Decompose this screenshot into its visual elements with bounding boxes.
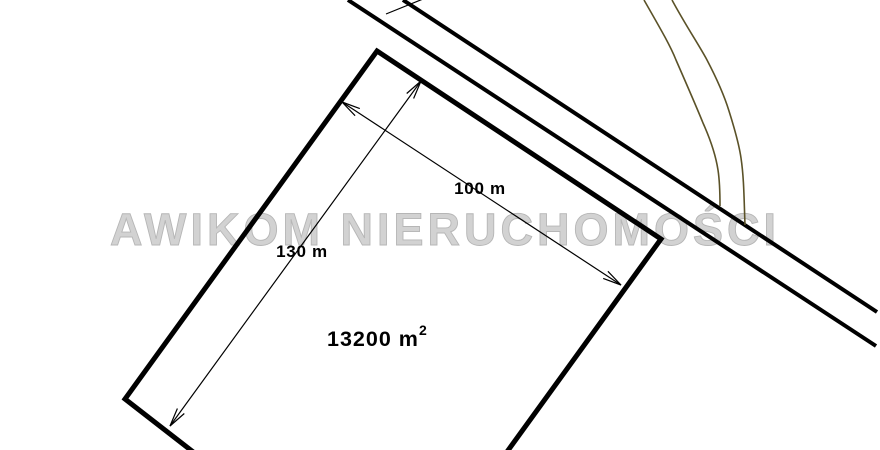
svg-text:AWIKOM NIERUCHOMOŚCI: AWIKOM NIERUCHOMOŚCI (110, 204, 780, 255)
svg-text:130 m: 130 m (276, 242, 328, 261)
svg-text:100 m: 100 m (454, 179, 506, 198)
svg-text:2: 2 (419, 322, 427, 338)
svg-text:13200 m: 13200 m (327, 327, 419, 351)
